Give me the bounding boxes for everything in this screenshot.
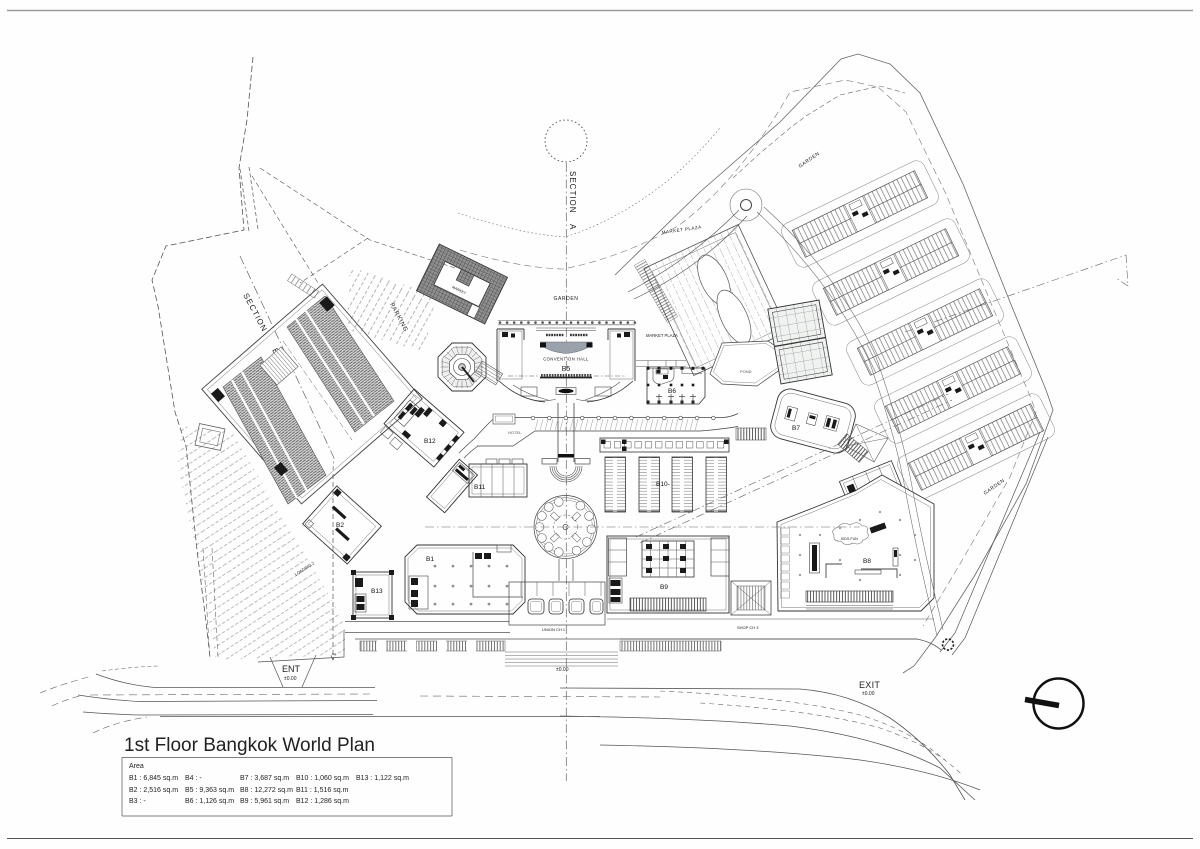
- svg-text:B7 : 3,687 sq.m: B7 : 3,687 sq.m: [240, 775, 289, 782]
- svg-text:1st Floor Bangkok World Plan: 1st Floor Bangkok World Plan: [124, 735, 375, 756]
- svg-text:B12 : 1,286 sq.m: B12 : 1,286 sq.m: [296, 798, 349, 805]
- svg-text:±0.00: ±0.00: [284, 676, 297, 682]
- svg-text:B11: B11: [474, 484, 485, 491]
- svg-text:B5: B5: [562, 366, 571, 373]
- svg-text:B8 : 12,272 sq.m: B8 : 12,272 sq.m: [240, 787, 293, 794]
- svg-text:B13 : 1,122 sq.m: B13 : 1,122 sq.m: [356, 775, 409, 782]
- svg-text:B8: B8: [863, 558, 871, 565]
- svg-text:B10-: B10-: [656, 481, 670, 488]
- svg-text:B13: B13: [371, 588, 383, 595]
- svg-text:B1 : 6,845 sq.m: B1 : 6,845 sq.m: [129, 775, 178, 782]
- svg-text:SHOP CH 3: SHOP CH 3: [737, 625, 759, 630]
- svg-text:UNION CH 1: UNION CH 1: [542, 627, 566, 632]
- svg-text:SECTION: SECTION: [568, 171, 577, 214]
- svg-text:B6 : 1,126 sq.m: B6 : 1,126 sq.m: [185, 798, 234, 805]
- svg-text:B12: B12: [424, 438, 436, 445]
- svg-text:EXIT: EXIT: [859, 680, 880, 690]
- svg-text:POND: POND: [740, 369, 752, 374]
- svg-text:CONVENTION HALL: CONVENTION HALL: [543, 357, 589, 362]
- svg-text:B5 : 9,363 sq.m: B5 : 9,363 sq.m: [185, 787, 234, 794]
- svg-text:B3 : -: B3 : -: [129, 798, 146, 805]
- svg-text:Area: Area: [129, 763, 144, 770]
- svg-text:ENT: ENT: [282, 664, 301, 674]
- svg-text:B11 : 1,516 sq.m: B11 : 1,516 sq.m: [296, 787, 349, 794]
- svg-text:B2: B2: [336, 522, 344, 529]
- svg-text:±0.00: ±0.00: [862, 691, 875, 697]
- svg-text:B6: B6: [668, 388, 676, 395]
- svg-text:B10 : 1,060 sq.m: B10 : 1,060 sq.m: [296, 775, 349, 782]
- svg-text:B9 : 5,961 sq.m: B9 : 5,961 sq.m: [240, 798, 289, 805]
- svg-text:MARKET PLAZA: MARKET PLAZA: [646, 333, 678, 338]
- svg-text:A: A: [568, 224, 577, 230]
- svg-text:B9: B9: [660, 584, 668, 591]
- svg-text:±0.00: ±0.00: [556, 667, 569, 673]
- svg-text:HOTEL: HOTEL: [508, 430, 522, 435]
- svg-text:B4 : -: B4 : -: [185, 775, 202, 782]
- svg-text:GARDEN: GARDEN: [554, 296, 579, 302]
- svg-text:KIDS FUN: KIDS FUN: [841, 537, 858, 541]
- svg-text:B1: B1: [426, 556, 434, 563]
- svg-text:B2 : 2,516 sq.m: B2 : 2,516 sq.m: [129, 787, 178, 794]
- svg-text:B7: B7: [792, 425, 800, 432]
